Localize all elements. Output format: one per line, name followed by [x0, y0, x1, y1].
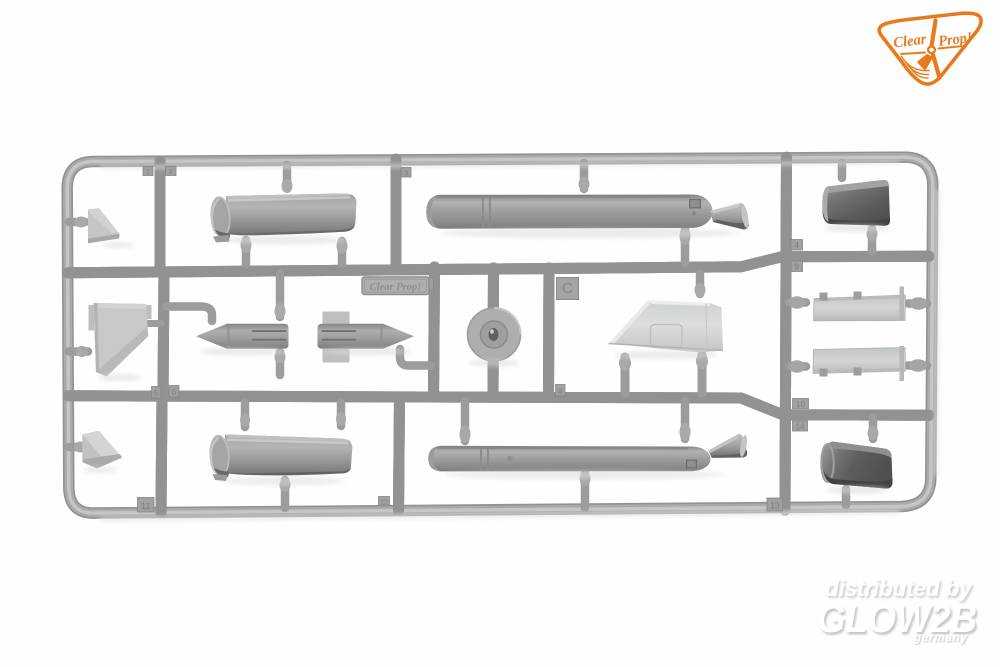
svg-text:1: 1 [146, 167, 150, 176]
svg-text:10: 10 [796, 400, 805, 409]
svg-text:13: 13 [770, 501, 780, 511]
svg-text:C: C [562, 281, 573, 298]
svg-text:5: 5 [154, 388, 159, 398]
svg-text:germany: germany [913, 632, 968, 644]
svg-text:3: 3 [404, 169, 408, 178]
svg-text:4: 4 [794, 241, 799, 250]
svg-text:12: 12 [380, 498, 388, 507]
svg-text:2: 2 [169, 167, 173, 176]
svg-text:6: 6 [172, 387, 177, 397]
svg-text:11: 11 [141, 501, 151, 512]
svg-text:Clear Prop!: Clear Prop! [370, 282, 422, 293]
svg-text:9: 9 [794, 263, 799, 272]
svg-text:8: 8 [558, 386, 563, 396]
svg-text:14: 14 [796, 422, 805, 431]
